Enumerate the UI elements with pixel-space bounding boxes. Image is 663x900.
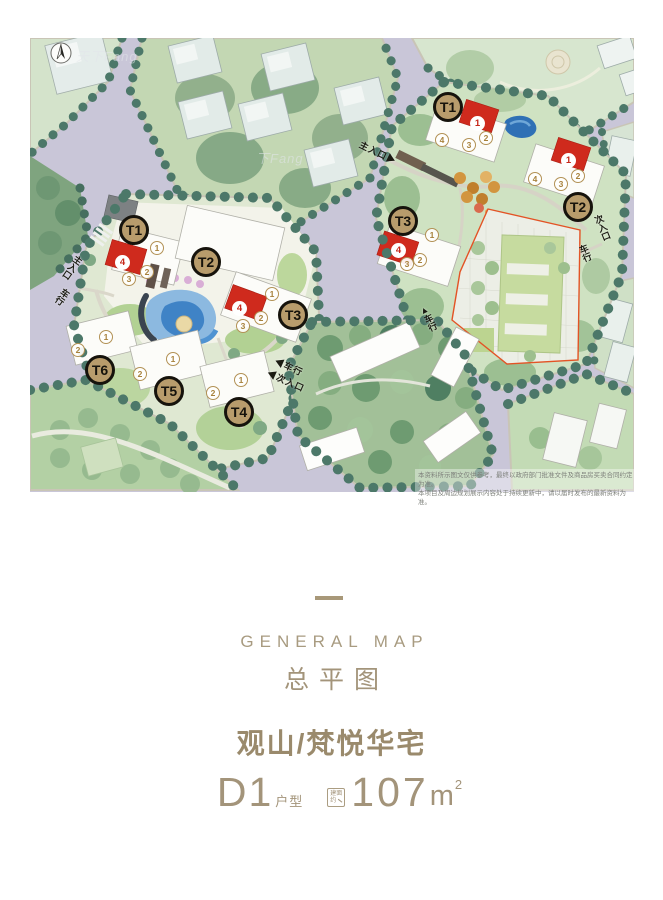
badge-line2: 约 bbox=[330, 798, 342, 805]
disclaimer-line: 本项目及周边规划展示内容处于持续更新中，请以届时发布的最新资料为准。 bbox=[418, 489, 636, 507]
approx-slash-icon bbox=[338, 798, 343, 802]
unit-marker: 3 bbox=[236, 319, 250, 333]
unit-marker: 3 bbox=[400, 257, 414, 271]
unit-marker: 1 bbox=[234, 373, 248, 387]
unit-marker: 2 bbox=[140, 265, 154, 279]
unit-info-row: D1 户型 建面 约 107 m 2 bbox=[8, 776, 663, 809]
unit-code: D1 bbox=[217, 776, 273, 809]
compass: N bbox=[50, 42, 74, 54]
unit-marker: 3 bbox=[122, 272, 136, 286]
unit-marker-highlighted: 4 bbox=[391, 243, 406, 258]
map-disclaimer: 本资料所示图文仅供参考，最终以政府部门批准文件及商品房买卖合同约定为准。 本项目… bbox=[415, 469, 639, 509]
project-name: 观山/梵悦华宅 bbox=[0, 722, 663, 762]
unit-marker: 4 bbox=[528, 172, 542, 186]
unit-marker: 1 bbox=[166, 352, 180, 366]
compass-needle-icon bbox=[50, 42, 72, 64]
watermark-text: 天下Fang bbox=[76, 46, 138, 65]
tower-marker-left-t6: T6 bbox=[85, 355, 115, 385]
tower-marker-right-t3: T3 bbox=[388, 206, 418, 236]
unit-marker-highlighted: 4 bbox=[232, 301, 247, 316]
area-value: 107 bbox=[351, 776, 428, 809]
unit-marker: 1 bbox=[99, 330, 113, 344]
subtitle-english: GENERAL MAP bbox=[0, 632, 663, 652]
section-divider bbox=[315, 596, 343, 600]
unit-marker: 2 bbox=[206, 386, 220, 400]
watermark-text: 下Fang bbox=[256, 148, 304, 167]
area-approx-badge: 建面 约 bbox=[327, 788, 345, 807]
unit-marker: 2 bbox=[71, 343, 85, 357]
unit-marker: 2 bbox=[133, 367, 147, 381]
block-bottom-middle bbox=[288, 320, 493, 488]
unit-marker: 1 bbox=[150, 241, 164, 255]
tower-marker-left-t2: T2 bbox=[191, 247, 221, 277]
unit-marker: 3 bbox=[462, 138, 476, 152]
unit-suffix: 户型 bbox=[275, 795, 303, 808]
section-title-chinese: 总平图 bbox=[0, 660, 663, 696]
unit-marker: 4 bbox=[435, 133, 449, 147]
unit-marker-highlighted: 1 bbox=[470, 116, 485, 131]
site-plan-map: N 天下Fang 下Fang T1 T2 T3 T4 T5 T6 T1 T2 T… bbox=[30, 38, 634, 490]
tower-marker-right-t2: T2 bbox=[563, 192, 593, 222]
area-superscript: 2 bbox=[455, 778, 462, 791]
tower-marker-right-t1: T1 bbox=[433, 92, 463, 122]
tower-marker-left-t4: T4 bbox=[224, 397, 254, 427]
unit-marker: 3 bbox=[554, 177, 568, 191]
unit-marker: 2 bbox=[571, 169, 585, 183]
unit-marker: 1 bbox=[265, 287, 279, 301]
area-unit: m bbox=[430, 783, 454, 809]
tower-marker-left-t1: T1 bbox=[119, 215, 149, 245]
unit-marker-highlighted: 1 bbox=[561, 153, 576, 168]
unit-marker: 2 bbox=[479, 131, 493, 145]
unit-marker: 1 bbox=[425, 228, 439, 242]
unit-marker: 2 bbox=[254, 311, 268, 325]
unit-marker: 2 bbox=[413, 253, 427, 267]
disclaimer-line: 本资料所示图文仅供参考，最终以政府部门批准文件及商品房买卖合同约定为准。 bbox=[418, 471, 636, 489]
unit-marker-highlighted: 4 bbox=[115, 255, 130, 270]
tower-marker-left-t3: T3 bbox=[278, 300, 308, 330]
general-map-poster: N 天下Fang 下Fang T1 T2 T3 T4 T5 T6 T1 T2 T… bbox=[0, 0, 663, 900]
tower-marker-left-t5: T5 bbox=[154, 376, 184, 406]
